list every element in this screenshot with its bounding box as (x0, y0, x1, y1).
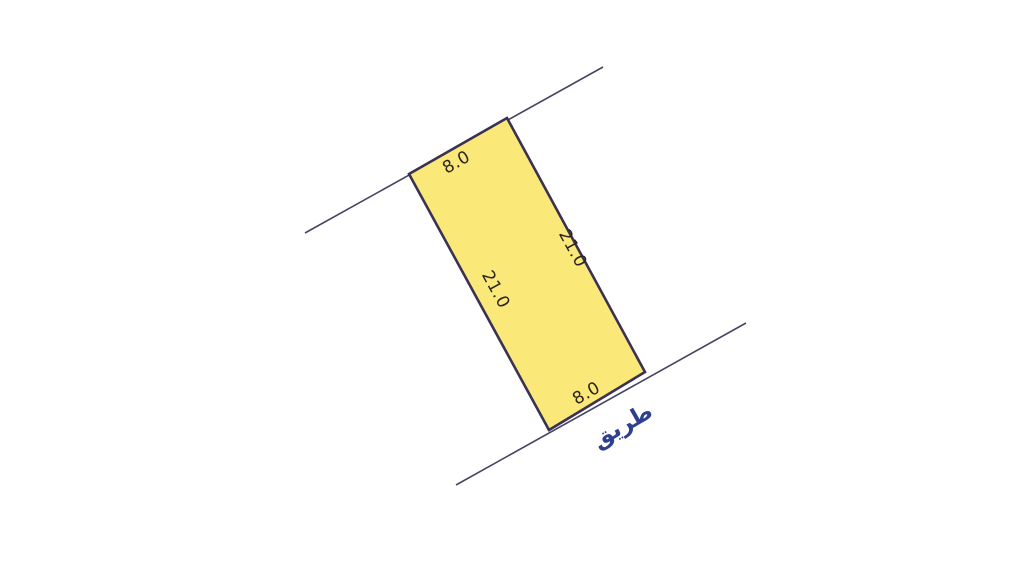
road-name-label: طريق (588, 398, 658, 453)
parcel-survey-drawing: 8.0 21.0 21.0 8.0 طريق (0, 0, 1024, 576)
survey-diagram-canvas: 8.0 21.0 21.0 8.0 طريق (0, 0, 1024, 576)
